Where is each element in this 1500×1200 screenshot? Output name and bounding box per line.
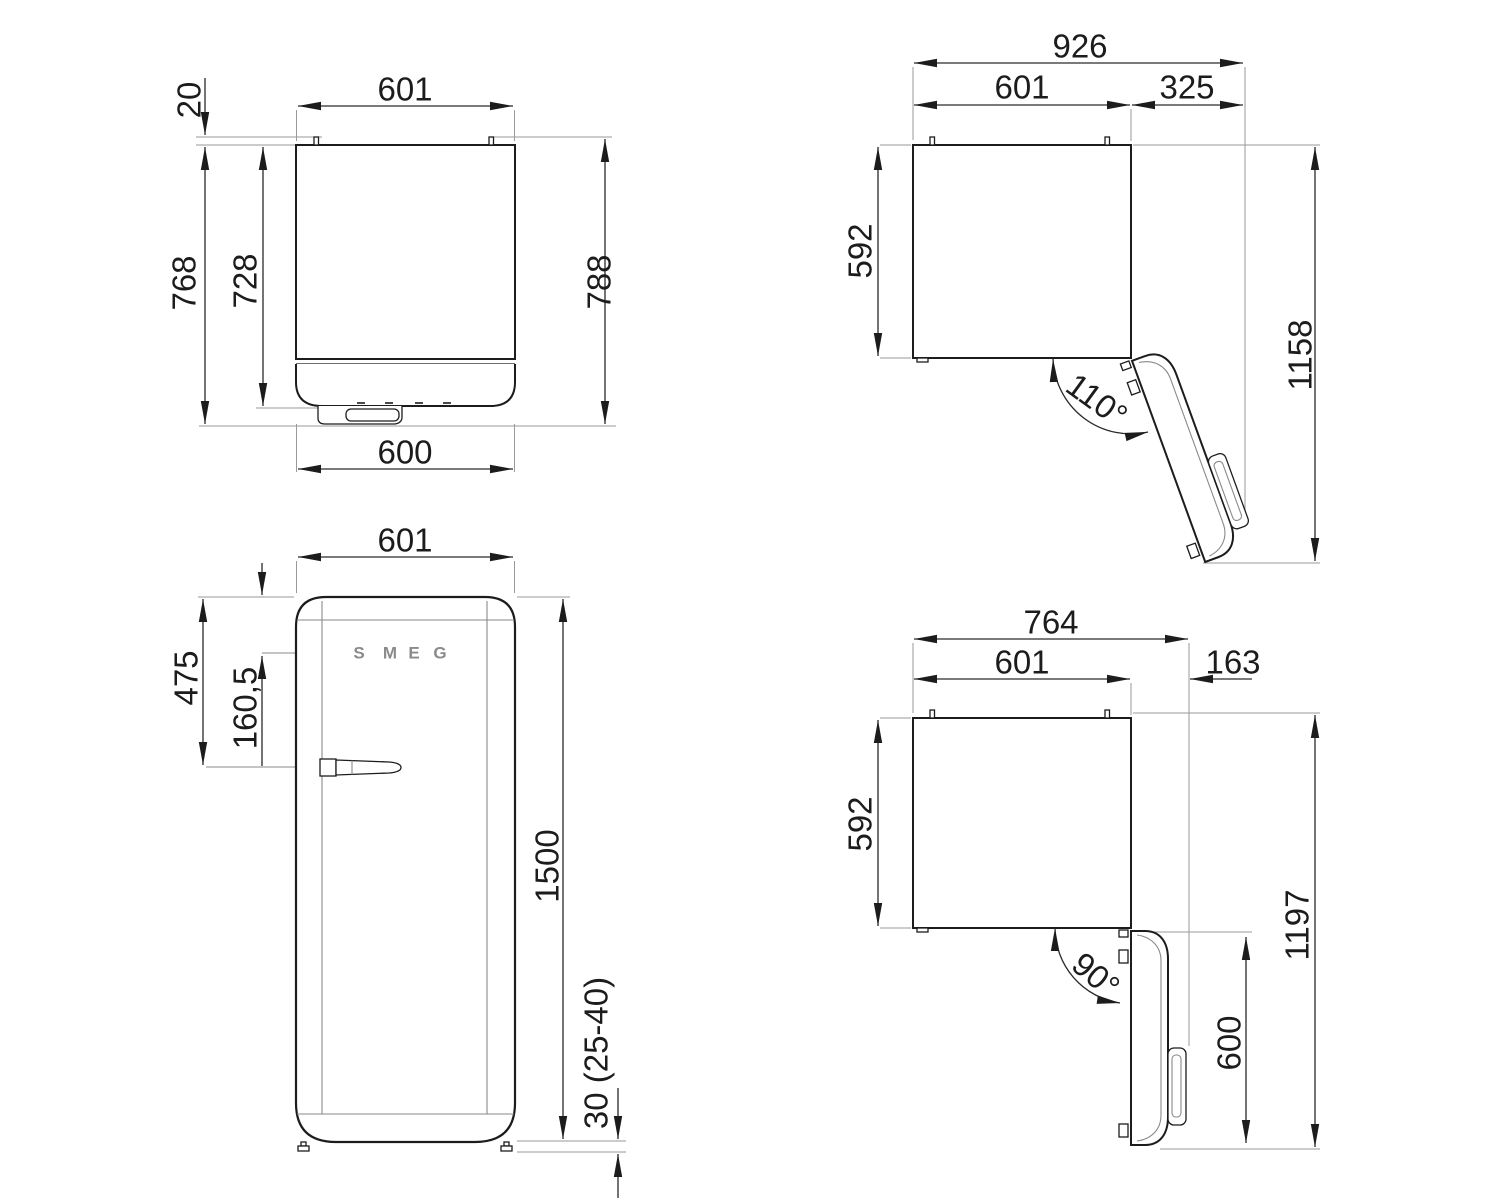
feet xyxy=(298,1142,512,1151)
dim-label-overall-width-110: 926 xyxy=(1052,30,1107,63)
door-open-110 xyxy=(1120,341,1256,566)
foot-base xyxy=(298,1146,309,1151)
hinge-pin xyxy=(489,137,494,145)
dim-label-depth-body: 728 xyxy=(229,253,262,308)
dim-label-door-width: 600 xyxy=(377,436,432,469)
dim-label-door-depth-open: 600 xyxy=(1213,1015,1246,1070)
cabinet-plan-body xyxy=(913,145,1131,358)
dim-label-front-width: 601 xyxy=(377,524,432,557)
dim-label-pin-offset: 20 xyxy=(173,82,206,119)
view-plan-open-90 xyxy=(878,639,1320,1149)
fridge-front-outline xyxy=(296,597,515,1142)
smeg-logo-letter-g: G xyxy=(433,645,446,662)
dim-label-body-width-110: 601 xyxy=(994,71,1049,104)
handle-mount-plate xyxy=(320,759,336,776)
door-front-plan xyxy=(296,364,515,406)
cabinet-plan-body xyxy=(913,718,1131,928)
dim-label-logo-offset: 160,5 xyxy=(229,667,262,750)
dim-label-overall-width-90: 764 xyxy=(1023,606,1078,639)
door-open-90 xyxy=(1119,930,1186,1145)
dim-label-width-top: 601 xyxy=(377,73,432,106)
dim-label-body-depth-90: 592 xyxy=(844,796,877,851)
dim-label-handle-offset: 475 xyxy=(170,650,203,705)
dim-label-body-depth-110: 592 xyxy=(844,223,877,278)
dimension-drawing-canvas: 601 20 768 728 788 600 926 601 325 592 1… xyxy=(0,0,1500,1200)
hinge-pin xyxy=(930,137,935,145)
cabinet-plan-body xyxy=(296,145,515,359)
foot-base xyxy=(501,1146,512,1151)
dim-label-body-width-90: 601 xyxy=(994,646,1049,679)
view-plan-open-110 xyxy=(878,63,1320,566)
dim-label-door-offset: 163 xyxy=(1205,646,1260,679)
dim-label-height: 1500 xyxy=(531,829,564,902)
dim-label-overall-depth-110: 1158 xyxy=(1284,320,1317,391)
hinge-pin xyxy=(930,710,935,718)
foot-tab xyxy=(917,928,928,932)
smeg-logo-letter-s: S xyxy=(353,645,364,662)
dim-label-depth-overall: 768 xyxy=(168,255,201,310)
dim-label-depth-hinges: 788 xyxy=(583,254,616,309)
smeg-logo-letter-m: M xyxy=(383,645,397,662)
hinge-pin xyxy=(314,137,319,145)
foot-tab xyxy=(917,358,928,362)
dim-label-overall-depth-90: 1197 xyxy=(1281,890,1314,961)
smeg-logo-letter-e: E xyxy=(408,645,419,662)
hinge-pin xyxy=(1105,137,1110,145)
dim-label-feet-height: 30 (25-40) xyxy=(580,977,613,1129)
dim-label-door-clearance: 325 xyxy=(1159,71,1214,104)
hinge-pin xyxy=(1105,710,1110,718)
drawing-linework xyxy=(0,0,1500,1200)
door-handle-front xyxy=(336,760,401,775)
